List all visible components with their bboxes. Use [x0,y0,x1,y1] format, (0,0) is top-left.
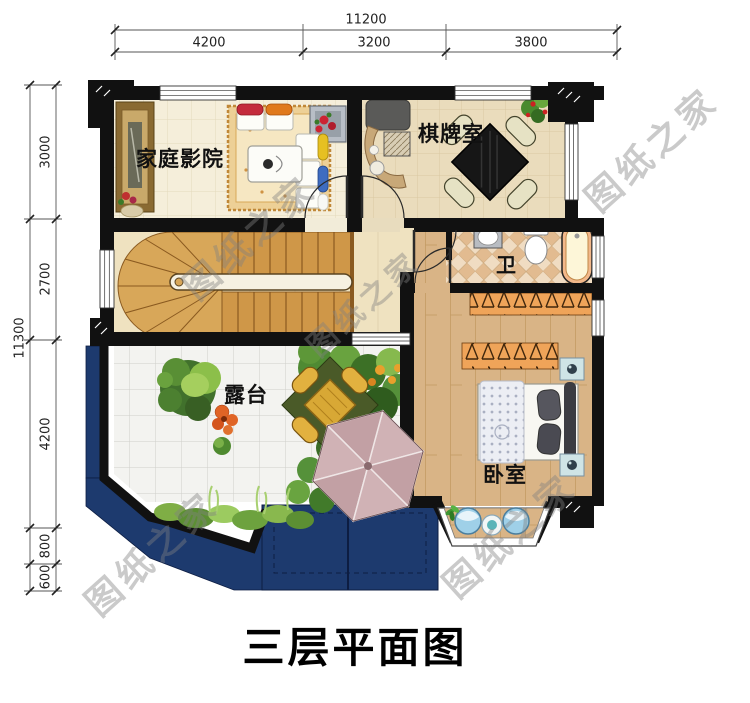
room-label-terrace: 露台 [224,379,268,409]
bathtub [562,223,592,284]
room-label-chess-room: 棋牌室 [418,118,484,148]
room-label-bathroom: 卫 [496,249,516,278]
dim-left-seg-2: 2700 [39,262,54,295]
dim-top-seg-1: 4200 [192,36,225,51]
window-top-left [160,86,236,100]
window-hall-terrace [352,333,410,345]
dim-left-total: 11300 [13,317,28,358]
floor-plan-canvas: 11200 4200 3200 3800 11300 3000 2700 420… [0,0,750,703]
room-label-bedroom: 卧室 [483,459,527,489]
dim-left-seg-4: 800 [39,534,54,559]
bed [478,381,578,463]
dim-top-seg-2: 3200 [357,36,390,51]
dim-top-seg-3: 3800 [514,36,547,51]
window-top-right [455,86,531,100]
dim-left-seg-5: 600 [39,565,54,590]
dim-left-seg-3: 4200 [39,417,54,450]
window-bathroom-right [592,236,604,278]
window-closet-right [592,300,604,336]
dim-left-seg-1: 3000 [39,135,54,168]
dim-top-total: 11200 [345,13,386,28]
page-title: 三层平面图 [242,614,467,675]
window-left [100,250,114,308]
room-label-home-theater: 家庭影院 [136,143,224,173]
